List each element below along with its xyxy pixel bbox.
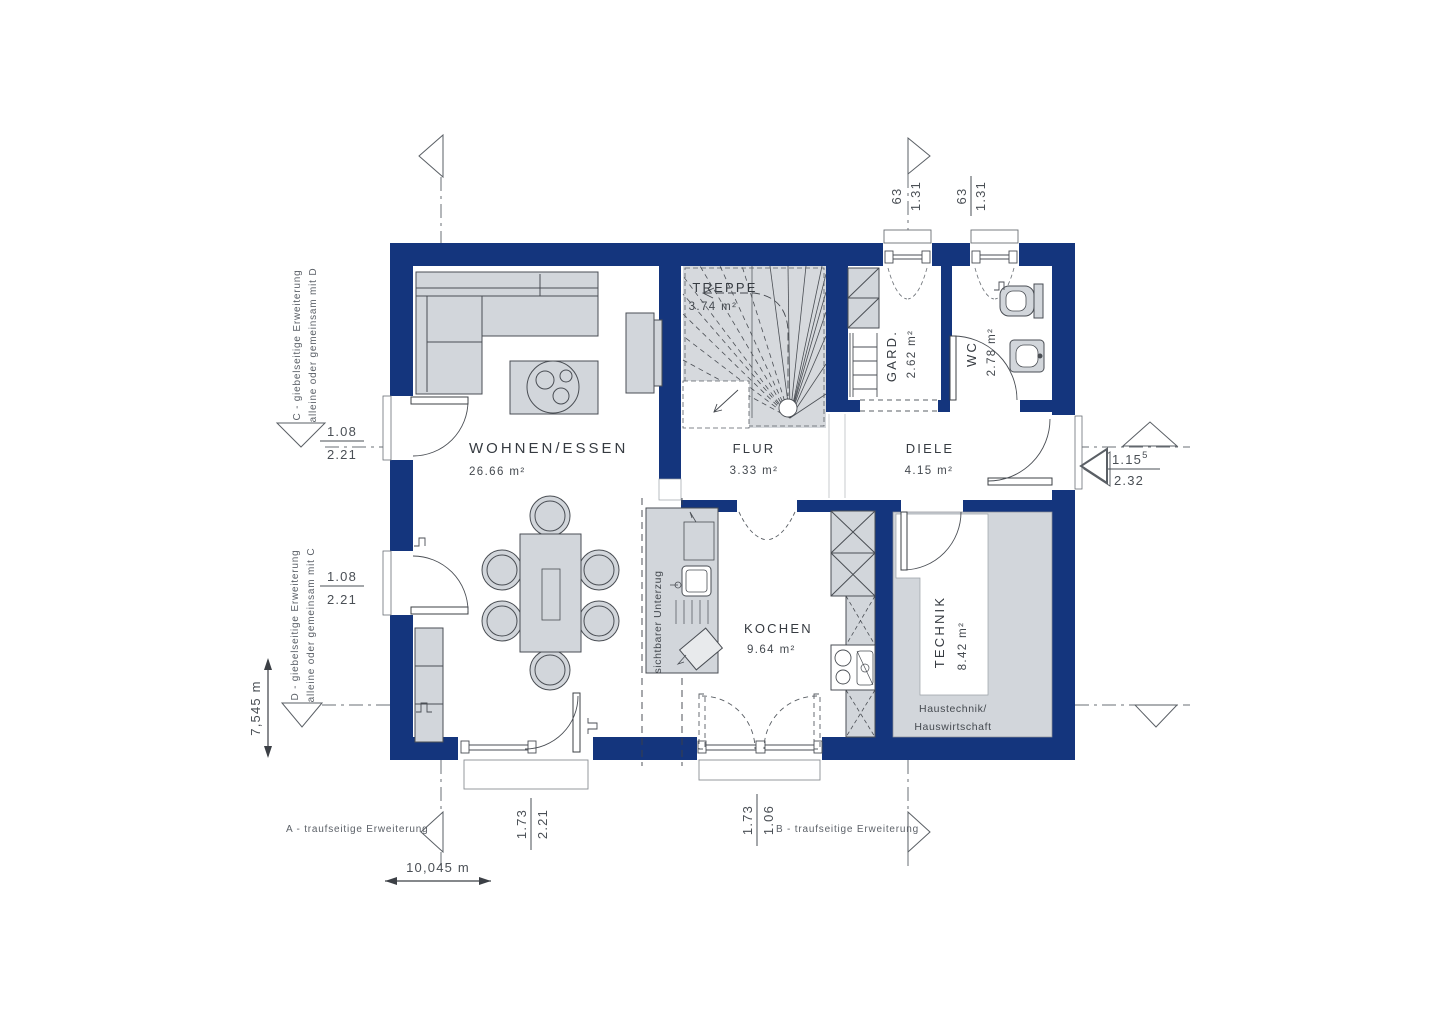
- door-entrance: [988, 419, 1052, 485]
- dim-top2-w: 63: [954, 188, 969, 205]
- area-treppe: 3.74 m²: [689, 301, 738, 313]
- door-left-2: [411, 556, 468, 614]
- note-ext-c1: C - giebelseitige Erweiterung: [292, 269, 303, 420]
- wall-treppe-gard: [826, 243, 848, 412]
- dining-table: [520, 534, 581, 652]
- sideboard: [415, 628, 443, 742]
- label-technik: TECHNIK: [932, 596, 947, 668]
- note-ext-d2: alleine oder gemeinsam mit C: [306, 548, 317, 703]
- label-kochen: KOCHEN: [744, 621, 813, 636]
- label-wc: WC: [964, 341, 979, 367]
- dim-top1-h: 1.31: [908, 181, 923, 211]
- door-wc: [950, 336, 1017, 400]
- dim-top1-w: 63: [889, 188, 904, 205]
- note-ext-a: A - traufseitige Erweiterung: [286, 824, 428, 835]
- floor-plan-page: WOHNEN/ESSEN 26.66 m² TREPPE 3.74 m² FLU…: [0, 0, 1440, 1019]
- dim-entry-w-sup: 5: [1142, 450, 1148, 461]
- floor-plan-drawing: WOHNEN/ESSEN 26.66 m² TREPPE 3.74 m² FLU…: [0, 0, 1440, 1019]
- kitchen-units: [831, 511, 875, 737]
- dim-left2-w: 1.08: [327, 569, 357, 584]
- note-ext-c2: alleine oder gemeinsam mit D: [308, 268, 319, 423]
- door-left-1: [411, 397, 468, 456]
- area-wc: 2.78 m²: [986, 328, 998, 377]
- dim-bottom1-w: 1.73: [514, 809, 529, 839]
- label-treppe: TREPPE: [692, 280, 757, 295]
- area-gard: 2.62 m²: [906, 330, 918, 379]
- label-beam: sichtbarer Unterzug: [652, 570, 664, 673]
- label-diele: DIELE: [906, 441, 955, 456]
- marker-top-right: [908, 138, 930, 174]
- dim-top2-h: 1.31: [973, 181, 988, 211]
- note-ext-b: B - traufseitige Erweiterung: [776, 824, 919, 835]
- stair-newel: [779, 399, 797, 417]
- label-gard: GARD.: [884, 330, 899, 382]
- note-ext-d1: D - giebelseitige Erweiterung: [290, 549, 301, 700]
- passage-kochen: [739, 512, 795, 540]
- area-wohnen: 26.66 m²: [469, 466, 526, 478]
- wc-sink: [1010, 340, 1044, 372]
- dim-entry-w: 1.155: [1112, 450, 1149, 467]
- area-diele: 4.15 m²: [905, 465, 954, 477]
- dim-left1-h: 2.21: [327, 447, 357, 462]
- area-kochen: 9.64 m²: [747, 644, 796, 656]
- coffee-table: [510, 361, 598, 414]
- dim-bottom2-h: 1.06: [761, 805, 776, 835]
- dim-entry-w-main: 1.15: [1112, 452, 1142, 467]
- gard-wardrobe: [848, 268, 879, 397]
- dim-left1-w: 1.08: [327, 424, 357, 439]
- label-haustechnik-2: Hauswirtschaft: [914, 721, 991, 733]
- dim-house-depth: 7,545 m: [248, 680, 263, 735]
- label-haustechnik-1: Haustechnik/: [919, 703, 987, 715]
- area-technik: 8.42 m²: [957, 622, 969, 671]
- tv-board: [626, 313, 662, 393]
- dim-house-width: 10,045 m: [406, 860, 470, 875]
- entrance-arrow: [1081, 449, 1107, 483]
- dim-left2-h: 2.21: [327, 592, 357, 607]
- wall-kochen-technik: [875, 512, 893, 760]
- stair-cut-area: [683, 381, 749, 428]
- label-wohnen: WOHNEN/ESSEN: [469, 440, 628, 457]
- marker-left-lower: [282, 703, 322, 727]
- marker-top-left: [419, 135, 443, 177]
- marker-right-lower: [1135, 705, 1177, 727]
- marker-left-upper: [277, 423, 325, 447]
- marker-right-upper: [1123, 422, 1177, 446]
- scale-arrows: 7,545 m 10,045 m: [248, 658, 491, 885]
- dim-bottom1-h: 2.21: [535, 809, 550, 839]
- dim-entry-h: 2.32: [1114, 473, 1144, 488]
- dim-bottom2-w: 1.73: [740, 805, 755, 835]
- label-flur: FLUR: [733, 441, 776, 456]
- wc-toilet: [1000, 284, 1043, 318]
- area-flur: 3.33 m²: [730, 465, 779, 477]
